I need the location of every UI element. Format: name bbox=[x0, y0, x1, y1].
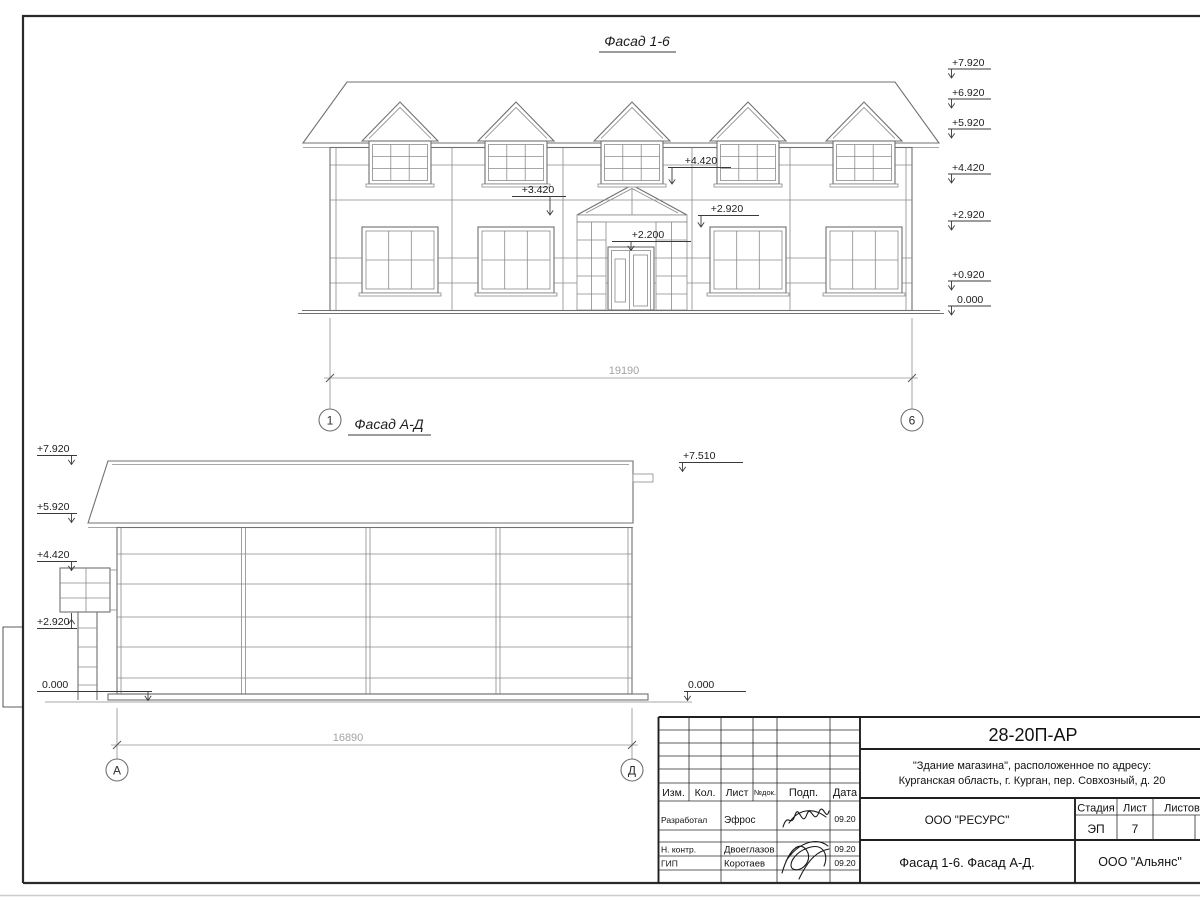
svg-text:+2.920: +2.920 bbox=[37, 616, 70, 628]
svg-text:+0.920: +0.920 bbox=[952, 269, 985, 281]
svg-text:1: 1 bbox=[327, 414, 334, 428]
stage-label: Стадия bbox=[1077, 803, 1115, 815]
svg-text:+7.920: +7.920 bbox=[952, 57, 985, 69]
svg-text:0.000: 0.000 bbox=[688, 679, 714, 691]
dimension-value: 16890 bbox=[333, 732, 364, 744]
binding-margin-box bbox=[3, 627, 23, 707]
elevation-mark-window-top: +2.920 bbox=[698, 203, 759, 227]
svg-text:+5.920: +5.920 bbox=[37, 501, 70, 513]
svg-text:+7.510: +7.510 bbox=[683, 450, 716, 462]
facade-a-d: Фасад А-Д bbox=[37, 416, 746, 781]
org-2: ООО "Альянс" bbox=[1098, 855, 1182, 869]
elevation-mark: +4.420 bbox=[948, 162, 991, 183]
svg-text:Д: Д bbox=[628, 764, 636, 778]
object-line1: "Здание магазина", расположенное по адре… bbox=[913, 760, 1151, 772]
elevation-mark-pediment: +3.420 bbox=[512, 184, 566, 215]
entrance-portico bbox=[577, 185, 687, 310]
row-date: 09.20 bbox=[834, 814, 856, 824]
row-role: Н. контр. bbox=[661, 845, 696, 855]
svg-text:+4.420: +4.420 bbox=[685, 155, 718, 167]
elevation-marks-right: +7.510 0.000 bbox=[679, 450, 746, 701]
col-podp: Подп. bbox=[789, 787, 818, 799]
elevation-mark: 0.000 bbox=[684, 679, 746, 701]
facade-a-d-title: Фасад А-Д bbox=[354, 416, 423, 432]
elevation-mark: +2.920 bbox=[37, 613, 77, 629]
sheet-label: Лист bbox=[1123, 803, 1147, 815]
stage-value: ЭП bbox=[1087, 822, 1104, 836]
object-line2: Курганская область, г. Курган, пер. Совх… bbox=[899, 775, 1166, 787]
elevation-marks-right: +7.920 +6.920 +5.920 +4.420 +2.920 +0.92… bbox=[948, 57, 991, 315]
axis-marker-1: 1 bbox=[319, 409, 341, 431]
svg-text:+2.920: +2.920 bbox=[711, 203, 744, 215]
quoins-left bbox=[577, 222, 606, 310]
col-kol: Кол. bbox=[695, 787, 716, 799]
row-role: Разработал bbox=[661, 815, 707, 825]
svg-text:+2.200: +2.200 bbox=[632, 229, 665, 241]
ladder bbox=[78, 612, 97, 700]
svg-text:+7.920: +7.920 bbox=[37, 443, 70, 455]
wall-a-d bbox=[117, 528, 632, 695]
axis-marker-a: А bbox=[106, 759, 128, 781]
row-date: 09.20 bbox=[834, 858, 856, 868]
svg-text:0.000: 0.000 bbox=[42, 679, 68, 691]
elevation-mark: +7.920 bbox=[37, 443, 77, 465]
svg-text:А: А bbox=[113, 764, 121, 778]
signature-2 bbox=[782, 842, 829, 879]
org-1: ООО "РЕСУРС" bbox=[925, 815, 1010, 827]
vent-pipe bbox=[633, 474, 653, 482]
facade-1-6-title: Фасад 1-6 bbox=[604, 33, 670, 49]
facade-1-6: Фасад 1-6 bbox=[298, 33, 991, 431]
entrance-door bbox=[608, 247, 654, 310]
base-a-d bbox=[45, 694, 692, 702]
svg-text:+6.920: +6.920 bbox=[952, 87, 985, 99]
svg-text:+5.920: +5.920 bbox=[952, 117, 985, 129]
dimension-a-d: 16890 А Д bbox=[106, 708, 643, 781]
row-role: ГИП bbox=[661, 859, 678, 869]
col-list: Лист bbox=[726, 787, 749, 799]
elevation-mark: +2.920 bbox=[948, 209, 991, 230]
wall-sign-box bbox=[60, 568, 117, 612]
drawing-sheet: Фасад 1-6 bbox=[0, 0, 1200, 900]
svg-text:0.000: 0.000 bbox=[957, 294, 983, 306]
roof-a-d bbox=[88, 461, 653, 528]
elevation-mark: +7.920 bbox=[948, 57, 991, 78]
axis-marker-6: 6 bbox=[901, 409, 923, 431]
title-block: Изм. Кол. Лист №док. Подп. Дата Разработ… bbox=[659, 717, 1200, 883]
elevation-mark: +6.920 bbox=[948, 87, 991, 108]
row-name: Эфрос bbox=[724, 814, 756, 826]
sheets-label: Листов bbox=[1164, 803, 1200, 815]
col-ndok: №док. bbox=[754, 788, 776, 797]
svg-text:+3.420: +3.420 bbox=[522, 184, 555, 196]
dimension-value: 19190 bbox=[609, 365, 640, 377]
facade-drawing-svg: Фасад 1-6 bbox=[0, 0, 1200, 900]
col-izm: Изм. bbox=[662, 787, 685, 799]
elevation-mark: +5.920 bbox=[37, 501, 77, 523]
axis-marker-d: Д bbox=[621, 759, 643, 781]
project-code: 28-20П-АР bbox=[989, 725, 1078, 745]
elevation-mark: 0.000 bbox=[37, 679, 152, 701]
elevation-mark: 0.000 bbox=[948, 294, 991, 315]
svg-text:+4.420: +4.420 bbox=[37, 549, 70, 561]
signature-1 bbox=[783, 809, 829, 827]
base-1-6 bbox=[298, 311, 944, 314]
drawing-title: Фасад 1-6. Фасад А-Д. bbox=[899, 855, 1035, 870]
row-name: Двоеглазов bbox=[724, 845, 775, 856]
entablature bbox=[577, 215, 687, 222]
elevation-mark: +5.920 bbox=[948, 117, 991, 138]
sheet-number: 7 bbox=[1132, 822, 1139, 836]
svg-text:+2.920: +2.920 bbox=[952, 209, 985, 221]
row-name: Коротаев bbox=[724, 859, 765, 870]
dimension-1-6: 19190 1 6 bbox=[319, 318, 923, 431]
col-data: Дата bbox=[833, 787, 858, 799]
revision-table: Изм. Кол. Лист №док. Подп. Дата Разработ… bbox=[659, 717, 861, 883]
row-date: 09.20 bbox=[834, 844, 856, 854]
svg-text:6: 6 bbox=[909, 414, 916, 428]
elevation-mark: +4.420 bbox=[37, 549, 77, 571]
svg-text:+4.420: +4.420 bbox=[952, 162, 985, 174]
elevation-mark: +0.920 bbox=[948, 269, 991, 290]
elevation-mark: +7.510 bbox=[679, 450, 743, 472]
